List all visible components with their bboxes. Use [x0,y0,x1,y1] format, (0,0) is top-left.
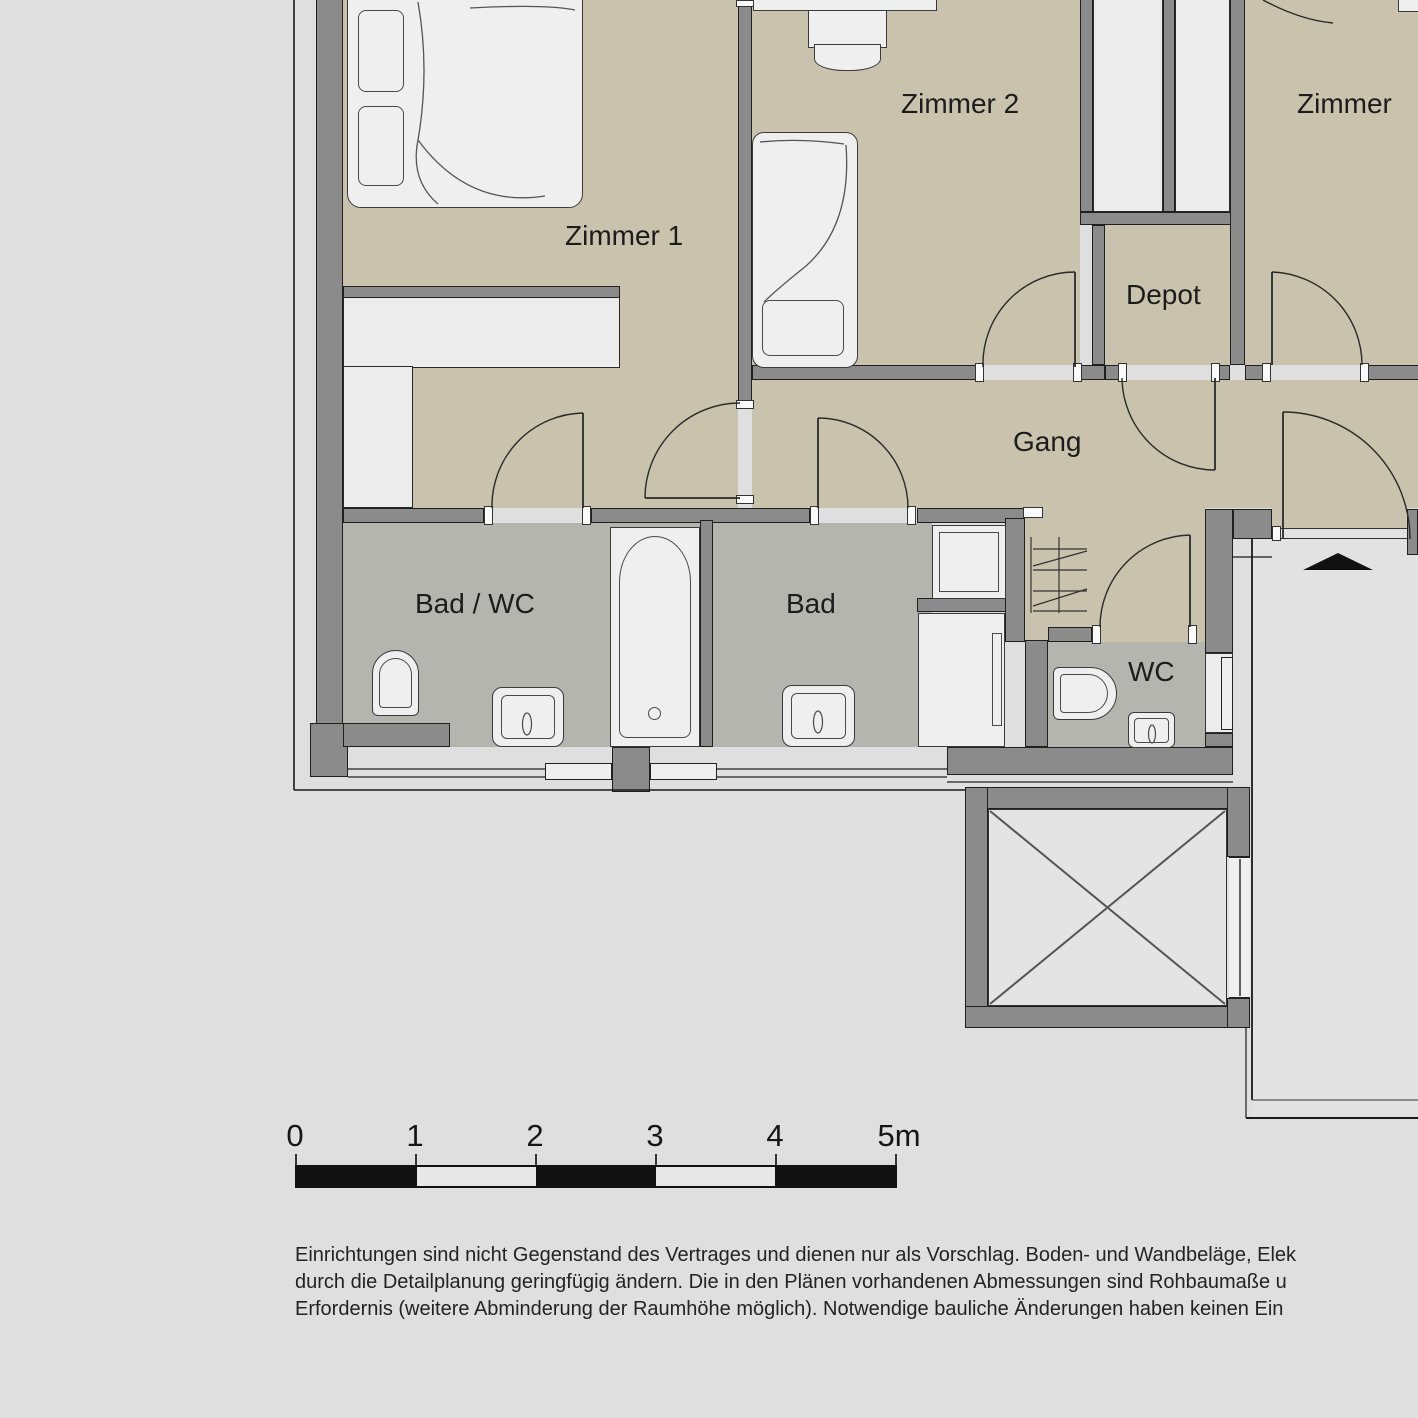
room-label-depot: Depot [1126,281,1201,309]
scale-tick-label: 2 [526,1118,543,1154]
scale-tick [295,1154,297,1165]
wall-wc-left [1025,640,1048,747]
door-jamb [582,506,591,525]
elevator-cab-area [988,809,1227,1006]
wall-depot-top [1080,212,1245,225]
door-jamb [1023,507,1043,518]
room-label-zimmer3: Zimmer [1297,90,1392,118]
room-label-wc: WC [1128,658,1175,686]
door-jamb [1092,625,1101,644]
elevator-wall-left [965,787,988,1028]
door-jamb [736,400,754,409]
elevator-wall-bottom [965,1006,1250,1028]
elevator-wall-top [965,787,1250,809]
shaft-left [1093,0,1163,212]
wall-shower-stub [917,598,1013,612]
disclaimer-text: Einrichtungen sind nicht Gegenstand des … [295,1242,1418,1323]
door-jamb [975,363,984,382]
wall-toilet-back-block [343,723,450,747]
stairwell-landing-floor [1252,539,1418,1118]
door-jamb [907,506,916,525]
window-band-line [717,769,947,777]
wall-south-under-wc [947,747,1233,775]
window-sill [650,763,717,780]
washbasin-inner [791,693,846,739]
wall-depot-left [1092,225,1105,365]
desk-chair-back [808,10,887,48]
wall-shaft-left [1080,0,1093,212]
disclaimer-line: Erfordernis (weitere Abminderung der Rau… [295,1296,1418,1323]
door-jamb [1272,526,1281,541]
scale-segment [775,1167,895,1186]
wall-badwc-bad-divider [700,520,713,747]
room-label-zimmer1: Zimmer 1 [565,222,683,250]
scale-segment [536,1167,656,1186]
window-band-line [348,769,545,777]
wall-east-of-cabinet [1005,518,1025,642]
room-label-badwc: Bad / WC [415,590,535,618]
wall-entry-top [1233,509,1272,539]
gang-entry-floor [1272,508,1407,528]
wall-zimmer3-south-right [1362,365,1418,380]
room-label-zimmer2: Zimmer 2 [901,90,1019,118]
scale-tick [415,1154,417,1165]
scale-tick-label: 1 [406,1118,423,1154]
wall-gang-south-1 [343,508,484,523]
window-wc [1221,657,1233,730]
room-zimmer3-floor [1245,0,1418,365]
disclaimer-line: durch die Detailplanung geringfügig ände… [295,1269,1418,1296]
door-jamb [1073,363,1082,382]
wall-zimmer1-zimmer2 [738,0,752,402]
scale-tick [535,1154,537,1165]
door-jamb [1211,363,1220,382]
door-jamb [736,495,754,504]
window-sill [545,763,612,780]
scale-tick-label: 5m [877,1118,920,1154]
wall-depot-zimmer3 [1230,0,1245,365]
scale-tick [655,1154,657,1165]
scale-tick-label: 0 [286,1118,303,1154]
elevator-door-gap [1229,857,1250,998]
wall-wc-right-lower [1205,733,1233,747]
room-label-bad: Bad [786,590,836,618]
zimmer1-niche-lower [343,366,413,508]
scale-segment [297,1167,417,1186]
wall-wc-top [1048,627,1092,642]
door-jamb [1118,363,1127,382]
elevator-wall-right-top [1227,787,1250,857]
scale-bar-strip [295,1165,897,1188]
bed-pillow [762,300,844,356]
bathtub-drain [648,707,661,720]
wall-niche-top [343,286,620,298]
scale-bar: 0 1 2 3 4 5m [295,1118,915,1188]
scale-segment [656,1167,776,1186]
room-gang-floor [752,380,1418,508]
entry-threshold [1280,528,1407,539]
facade-pillar-south [612,747,650,792]
wall-entry-right-piece [1407,509,1418,555]
room-label-gang: Gang [1013,428,1082,456]
door-jamb [736,0,754,7]
scale-tick-label: 4 [766,1118,783,1154]
gang-south-extension-floor [1025,508,1205,642]
door-jamb [1188,625,1197,644]
zimmer1-niche-upper [343,297,620,368]
toilet-bowl [379,658,412,708]
bed-pillow [358,10,404,92]
washbasin-inner [1134,718,1169,743]
door-jamb [484,506,493,525]
elevator-wall-right-bottom [1227,998,1250,1028]
scale-tick [895,1154,897,1165]
desk-chair-seat [814,44,881,71]
exterior-wall-west [316,0,343,747]
wall-entry-column [1205,509,1233,653]
furniture-cutoff [1398,0,1418,12]
scale-tick [775,1154,777,1165]
bed-pillow [358,106,404,186]
wall-shaft-divider [1163,0,1175,212]
washbasin-inner [501,695,555,739]
toilet-bowl [1060,674,1108,713]
floor-plan: Zimmer 1 Zimmer 2 Zimmer Depot Gang Bad … [0,0,1418,1418]
scale-segment [417,1167,537,1186]
scale-tick-label: 3 [646,1118,663,1154]
cabinet-door-slot [992,633,1002,726]
disclaimer-line: Einrichtungen sind nicht Gegenstand des … [295,1242,1418,1269]
door-jamb [810,506,819,525]
shaft-right [1175,0,1230,212]
shower-tray [939,532,999,592]
door-jamb [1360,363,1369,382]
door-jamb [1262,363,1271,382]
